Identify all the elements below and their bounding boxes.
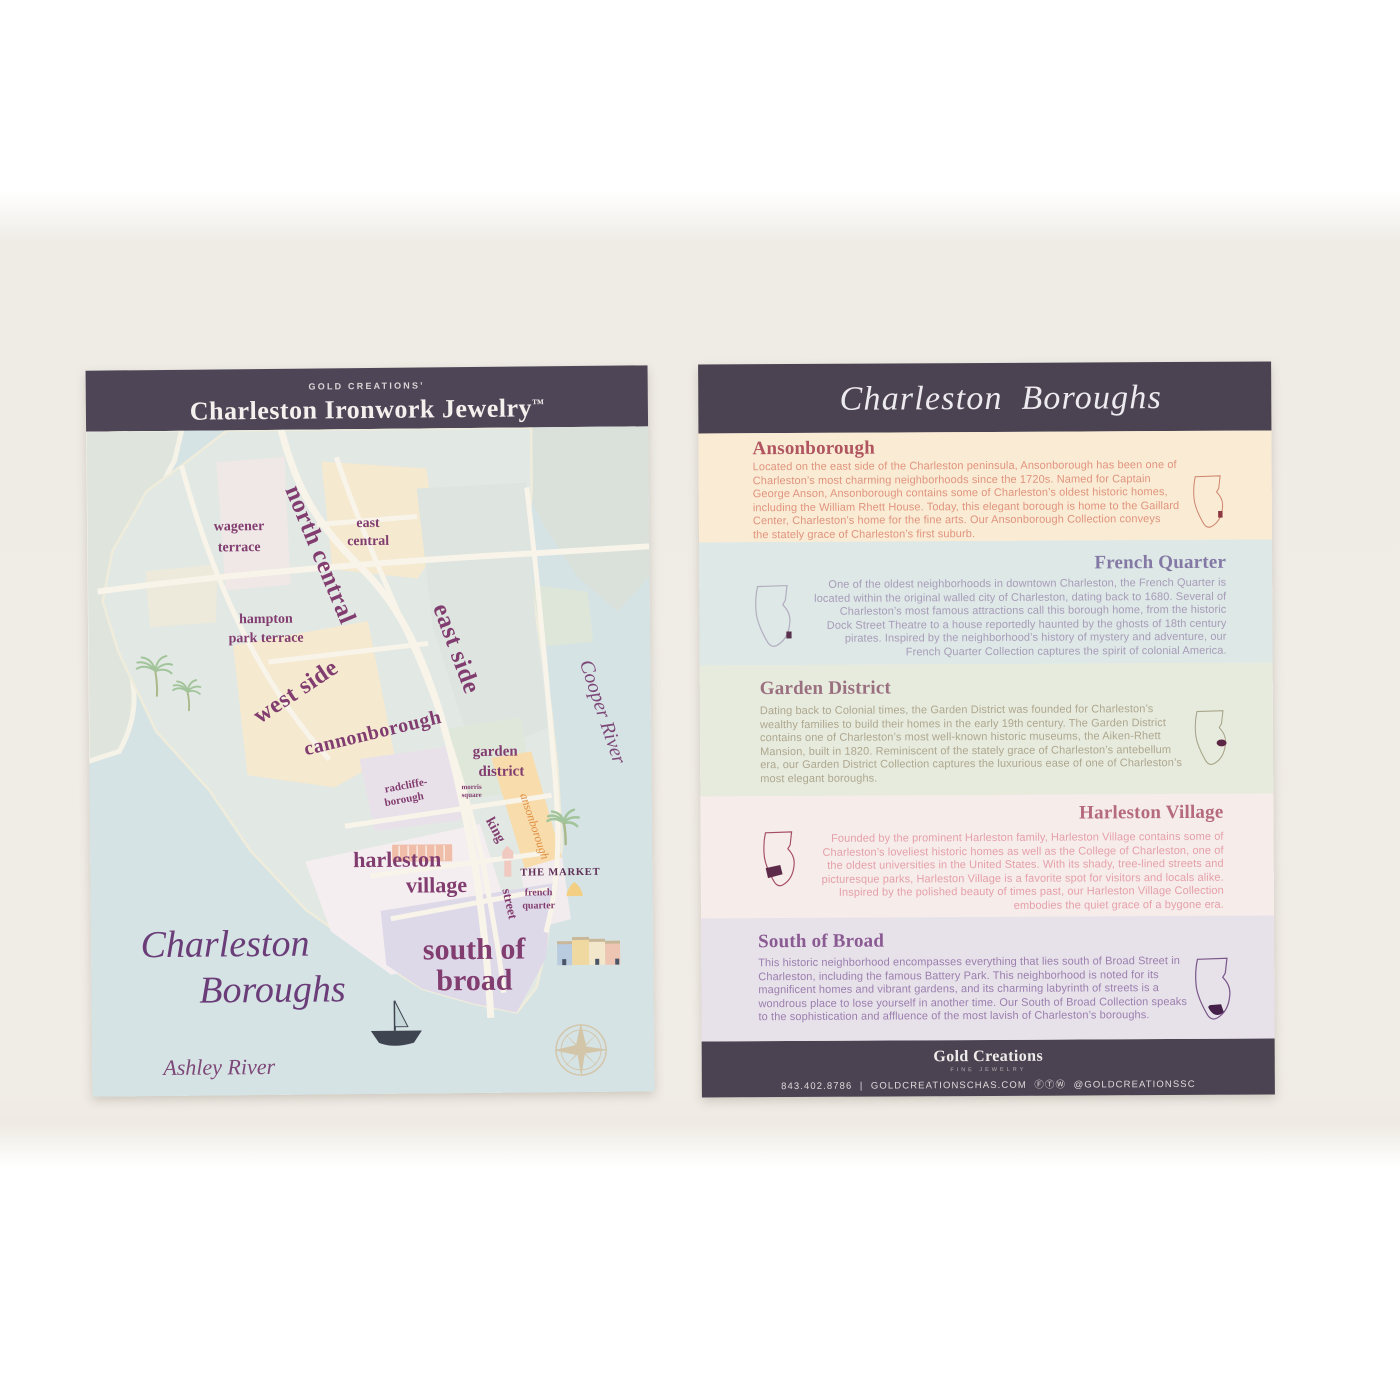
svg-text:THE MARKET: THE MARKET [520,867,600,879]
svg-text:hampton: hampton [239,612,293,628]
svg-text:village: village [406,872,468,898]
svg-text:central: central [347,534,389,549]
svg-text:broad: broad [436,964,513,998]
svg-text:park terrace: park terrace [229,631,304,647]
svg-text:morris: morris [461,783,482,791]
svg-text:district: district [478,764,524,780]
svg-text:Boroughs: Boroughs [199,968,346,1011]
svg-text:Charleston: Charleston [140,923,309,967]
svg-text:harleston: harleston [353,846,441,872]
svg-text:square: square [462,791,482,799]
svg-text:south of: south of [423,933,527,967]
svg-text:terrace: terrace [218,540,261,555]
svg-text:quarter: quarter [522,900,555,911]
svg-text:french: french [525,887,553,898]
svg-text:garden: garden [473,744,519,760]
svg-text:east: east [356,516,380,531]
svg-text:Ashley River: Ashley River [161,1054,275,1080]
svg-text:wagener: wagener [214,519,265,534]
